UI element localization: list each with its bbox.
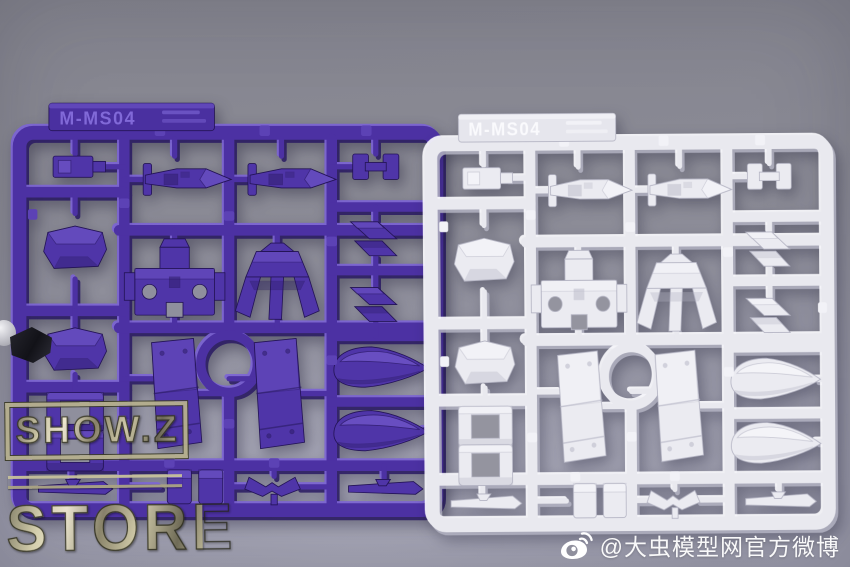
runner-tab-label: M-MS04 — [468, 119, 541, 140]
weibo-watermark: @大虫模型网官方微博 — [559, 528, 840, 562]
weibo-handle: @大虫模型网官方微博 — [600, 528, 840, 562]
store-watermark: SHOW.Z STORE — [5, 401, 203, 557]
weibo-icon — [559, 531, 593, 560]
photo-background: M-MS04 M-MS04 SHOW.Z STORE @大虫模型网官方微博 — [0, 0, 850, 567]
store-watermark-frame: SHOW.Z — [5, 401, 188, 460]
store-watermark-line2: STORE — [6, 495, 203, 562]
store-watermark-divider — [8, 474, 182, 489]
runner-tab-label: M-MS04 — [59, 108, 136, 128]
white-sprue: M-MS04 — [419, 110, 840, 541]
store-watermark-line1: SHOW.Z — [15, 410, 179, 449]
